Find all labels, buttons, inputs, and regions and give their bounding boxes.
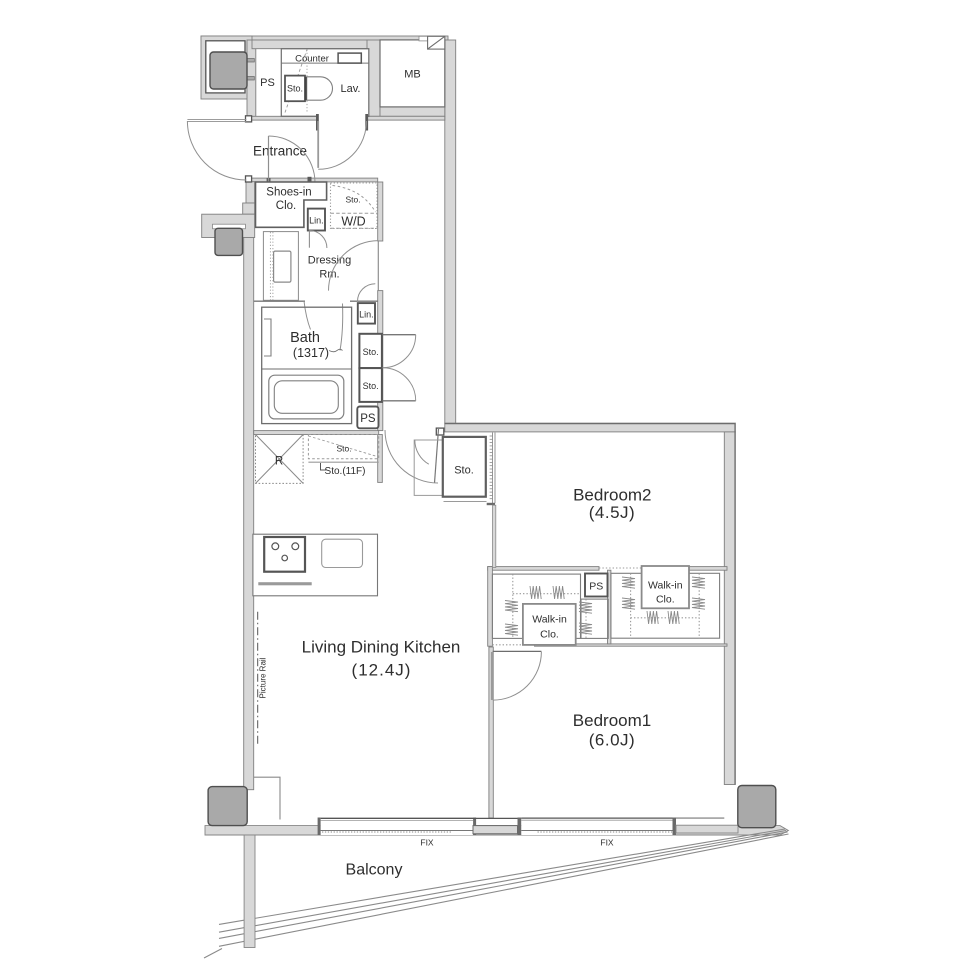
- svg-text:(1317): (1317): [293, 346, 329, 360]
- svg-text:Lav.: Lav.: [341, 83, 361, 95]
- svg-text:PS: PS: [360, 413, 376, 425]
- svg-text:Sto.: Sto.: [363, 347, 379, 357]
- svg-text:Lin.: Lin.: [359, 310, 374, 320]
- svg-text:FIX: FIX: [600, 838, 614, 848]
- svg-text:Walk-in: Walk-in: [532, 614, 567, 626]
- svg-text:Entrance: Entrance: [253, 144, 307, 159]
- svg-text:Clo.: Clo.: [656, 594, 675, 606]
- svg-text:Sto.(11F): Sto.(11F): [325, 466, 366, 477]
- svg-text:Balcony: Balcony: [346, 862, 403, 879]
- svg-text:Shoes-in: Shoes-in: [266, 187, 311, 199]
- svg-text:(6.0J): (6.0J): [589, 731, 635, 750]
- svg-text:Bath: Bath: [290, 330, 320, 346]
- svg-text:(4.5J): (4.5J): [589, 503, 635, 522]
- svg-text:Living Dining Kitchen: Living Dining Kitchen: [302, 638, 461, 657]
- svg-text:Walk-in: Walk-in: [648, 580, 683, 592]
- svg-text:Picture Rail: Picture Rail: [259, 657, 268, 698]
- svg-text:W/D: W/D: [341, 214, 365, 228]
- svg-text:PS: PS: [589, 581, 603, 593]
- svg-text:Sto.: Sto.: [454, 465, 474, 477]
- svg-text:Clo.: Clo.: [276, 200, 296, 212]
- svg-text:Bedroom1: Bedroom1: [573, 711, 651, 730]
- svg-text:R: R: [275, 456, 283, 468]
- svg-text:Bedroom2: Bedroom2: [573, 486, 651, 505]
- svg-text:MB: MB: [404, 69, 421, 81]
- svg-text:Sto.: Sto.: [287, 84, 303, 94]
- svg-text:Counter: Counter: [295, 54, 329, 65]
- svg-text:(12.4J): (12.4J): [352, 661, 412, 680]
- svg-text:Lin.: Lin.: [309, 216, 324, 226]
- svg-text:Sto.: Sto.: [363, 381, 379, 391]
- svg-text:Sto.: Sto.: [336, 444, 351, 454]
- svg-text:Clo.: Clo.: [540, 629, 559, 641]
- svg-text:PS: PS: [260, 77, 275, 89]
- svg-text:FIX: FIX: [420, 838, 434, 848]
- svg-text:Dressing: Dressing: [308, 255, 351, 267]
- svg-text:Sto.: Sto.: [345, 195, 360, 205]
